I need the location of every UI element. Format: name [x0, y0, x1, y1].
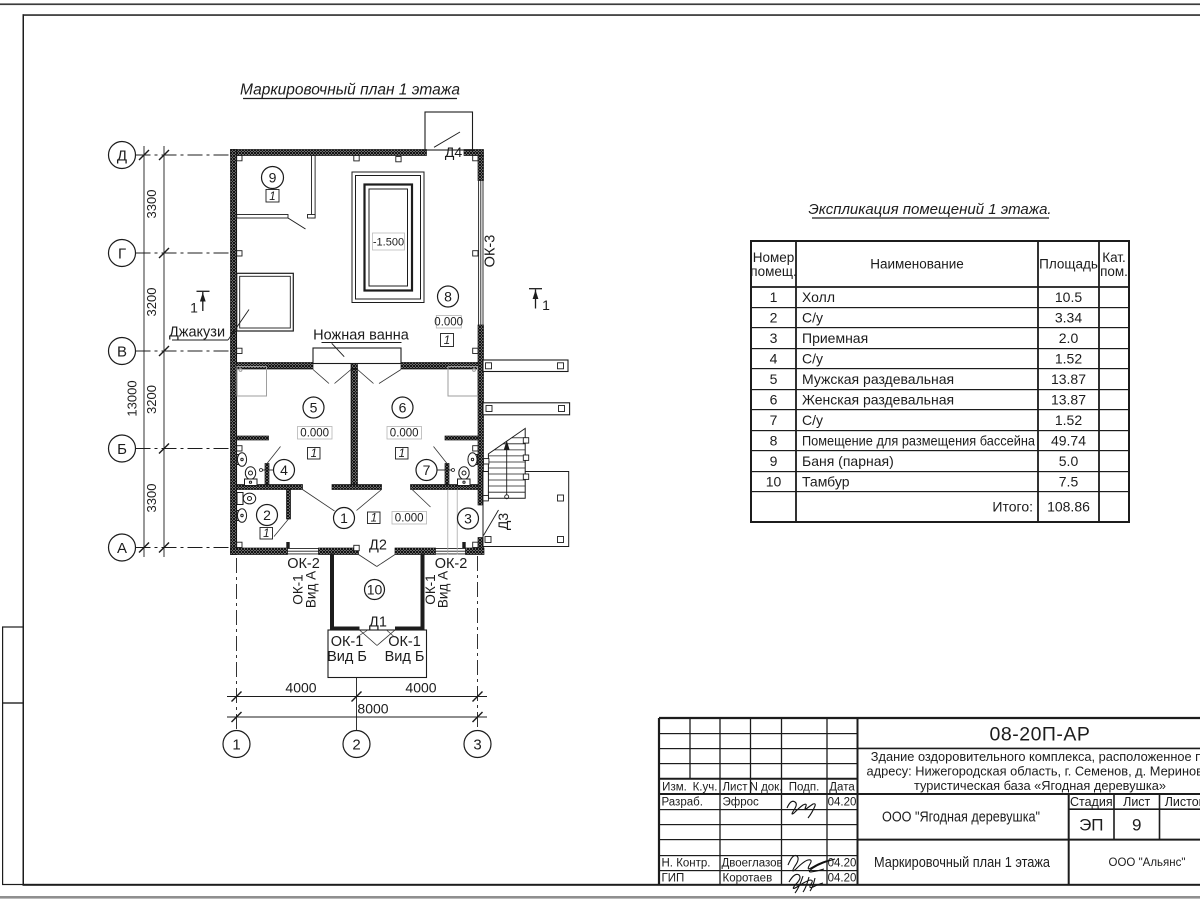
svg-text:Д3: Д3	[495, 513, 511, 530]
svg-text:5: 5	[310, 400, 318, 416]
svg-text:Вид А: Вид А	[304, 571, 319, 608]
svg-text:2.0: 2.0	[1059, 330, 1079, 346]
svg-text:Ножная ванна: Ножная ванна	[313, 328, 410, 344]
svg-text:3300: 3300	[144, 190, 159, 219]
svg-text:Помещение для размещения бассе: Помещение для размещения бассейна	[802, 433, 1035, 449]
svg-text:Коротаев: Коротаев	[723, 873, 773, 885]
svg-text:1: 1	[263, 528, 269, 540]
svg-text:Д4: Д4	[445, 144, 462, 160]
svg-text:3200: 3200	[144, 288, 159, 317]
svg-text:Тамбур: Тамбур	[802, 474, 850, 490]
svg-text:1.52: 1.52	[1055, 351, 1082, 367]
svg-text:А: А	[117, 540, 127, 557]
svg-text:Экспликация помещений 1 этажа.: Экспликация помещений 1 этажа.	[808, 201, 1051, 218]
svg-text:Маркировочный план 1 этажа: Маркировочный план 1 этажа	[240, 82, 460, 99]
svg-text:Лист: Лист	[723, 782, 749, 794]
svg-text:Г: Г	[118, 246, 126, 263]
svg-text:08-20П-АР: 08-20П-АР	[990, 724, 1091, 746]
svg-text:Итого:: Итого:	[992, 499, 1033, 515]
svg-text:8: 8	[770, 433, 778, 449]
svg-text:0.000: 0.000	[434, 316, 463, 328]
svg-text:Б: Б	[117, 441, 127, 458]
svg-text:3: 3	[473, 737, 481, 754]
svg-text:4000: 4000	[285, 680, 316, 696]
svg-text:Маркировочный план 1 этажа: Маркировочный план 1 этажа	[874, 854, 1051, 871]
svg-text:0.000: 0.000	[300, 427, 329, 439]
svg-text:ОК-2: ОК-2	[435, 556, 468, 572]
svg-text:4000: 4000	[405, 680, 436, 696]
svg-text:1: 1	[190, 300, 198, 316]
svg-text:Стадия: Стадия	[1070, 795, 1113, 809]
svg-text:Н. Контр.: Н. Контр.	[662, 857, 711, 869]
svg-text:ОК-3: ОК-3	[483, 235, 499, 268]
svg-text:Наименование: Наименование	[870, 257, 964, 272]
svg-text:-1.500: -1.500	[373, 237, 404, 249]
svg-text:С/у: С/у	[802, 412, 823, 428]
svg-text:ЭП: ЭП	[1079, 816, 1103, 835]
svg-text:пом.: пом.	[1100, 264, 1128, 279]
svg-text:В: В	[117, 344, 127, 361]
svg-text:8000: 8000	[357, 701, 388, 717]
svg-text:Вид Б: Вид Б	[327, 649, 367, 665]
svg-text:6: 6	[770, 392, 778, 408]
svg-text:04.20: 04.20	[828, 797, 857, 809]
svg-text:ОК-1: ОК-1	[388, 634, 421, 650]
svg-text:4: 4	[280, 462, 288, 478]
svg-text:Мужская раздевальная: Мужская раздевальная	[802, 371, 954, 387]
svg-text:7: 7	[770, 412, 778, 428]
svg-text:С/у: С/у	[802, 310, 823, 326]
svg-text:04.20: 04.20	[828, 857, 857, 869]
svg-text:Эфрос: Эфрос	[723, 797, 760, 809]
svg-text:ГИП: ГИП	[662, 873, 685, 885]
svg-text:Лист: Лист	[1123, 795, 1150, 809]
svg-text:2: 2	[263, 507, 271, 523]
svg-text:ООО "Альянс": ООО "Альянс"	[1109, 857, 1186, 869]
svg-text:Баня (парная): Баня (парная)	[802, 453, 894, 469]
svg-text:Вид А: Вид А	[436, 571, 451, 608]
svg-text:0.000: 0.000	[395, 512, 424, 524]
svg-text:помещ.: помещ.	[750, 264, 796, 279]
svg-text:Дата: Дата	[829, 782, 855, 794]
svg-text:1: 1	[311, 448, 317, 460]
svg-text:5.0: 5.0	[1059, 453, 1079, 469]
svg-text:адресу: Нижегородская область,: адресу: Нижегородская область, г. Семено…	[867, 764, 1200, 779]
svg-text:Подп.: Подп.	[789, 782, 820, 794]
svg-text:Д1: Д1	[369, 615, 387, 631]
svg-text:3: 3	[464, 511, 472, 527]
svg-text:1: 1	[371, 513, 377, 525]
svg-text:3300: 3300	[144, 484, 159, 513]
svg-text:9: 9	[1132, 816, 1141, 835]
svg-text:Вид Б: Вид Б	[385, 649, 425, 665]
svg-text:1: 1	[269, 191, 275, 203]
svg-text:Женская раздевальная: Женская раздевальная	[802, 392, 954, 408]
svg-text:10: 10	[367, 582, 383, 598]
svg-text:3: 3	[770, 330, 778, 346]
svg-text:10: 10	[766, 474, 782, 490]
svg-text:Д: Д	[117, 148, 127, 165]
svg-text:7: 7	[423, 462, 431, 478]
svg-text:3.34: 3.34	[1055, 310, 1082, 326]
svg-text:1: 1	[232, 737, 240, 754]
svg-text:1.52: 1.52	[1055, 412, 1082, 428]
svg-text:8: 8	[444, 289, 452, 305]
svg-text:4: 4	[770, 351, 778, 367]
svg-text:2: 2	[770, 310, 778, 326]
svg-text:10.5: 10.5	[1055, 289, 1082, 305]
svg-text:Здание оздоровительного компле: Здание оздоровительного комплекса, распо…	[871, 749, 1200, 764]
svg-text:туристическая база «Ягодная де: туристическая база «Ягодная деревушка»	[914, 778, 1166, 793]
svg-text:1: 1	[770, 289, 778, 305]
svg-text:Д2: Д2	[369, 538, 387, 554]
svg-text:1: 1	[444, 335, 450, 347]
svg-text:04.20: 04.20	[828, 873, 857, 885]
svg-text:Разраб.: Разраб.	[662, 797, 703, 809]
svg-text:1: 1	[399, 448, 405, 460]
svg-text:108.86: 108.86	[1047, 499, 1090, 515]
svg-text:9: 9	[770, 453, 778, 469]
svg-text:Приемная: Приемная	[802, 330, 868, 346]
svg-text:49.74: 49.74	[1051, 433, 1086, 449]
svg-text:9: 9	[269, 170, 277, 186]
svg-text:1: 1	[340, 510, 348, 526]
svg-text:5: 5	[770, 371, 778, 387]
svg-text:7.5: 7.5	[1059, 474, 1079, 490]
svg-text:13.87: 13.87	[1051, 392, 1086, 408]
svg-text:Изм.: Изм.	[662, 782, 687, 794]
svg-text:1: 1	[542, 297, 550, 313]
svg-text:Номер: Номер	[753, 250, 795, 265]
svg-text:13000: 13000	[125, 380, 140, 416]
svg-text:N док.: N док.	[750, 782, 783, 794]
svg-text:Холл: Холл	[802, 289, 835, 305]
svg-text:ООО "Ягодная деревушка": ООО "Ягодная деревушка"	[882, 810, 1040, 826]
svg-text:Двоеглазов: Двоеглазов	[722, 857, 783, 869]
svg-text:Кат.: Кат.	[1102, 250, 1126, 265]
svg-text:ОК-2: ОК-2	[287, 556, 320, 572]
svg-text:Джакузи: Джакузи	[169, 325, 225, 341]
svg-text:6: 6	[399, 400, 407, 416]
svg-text:Площадь: Площадь	[1039, 257, 1098, 272]
svg-text:2: 2	[352, 737, 360, 754]
svg-text:К.уч.: К.уч.	[693, 782, 718, 794]
svg-text:3200: 3200	[144, 385, 159, 414]
svg-text:Листов: Листов	[1165, 795, 1200, 809]
svg-text:13.87: 13.87	[1051, 371, 1086, 387]
svg-text:0.000: 0.000	[390, 427, 419, 439]
svg-text:С/у: С/у	[802, 351, 823, 367]
